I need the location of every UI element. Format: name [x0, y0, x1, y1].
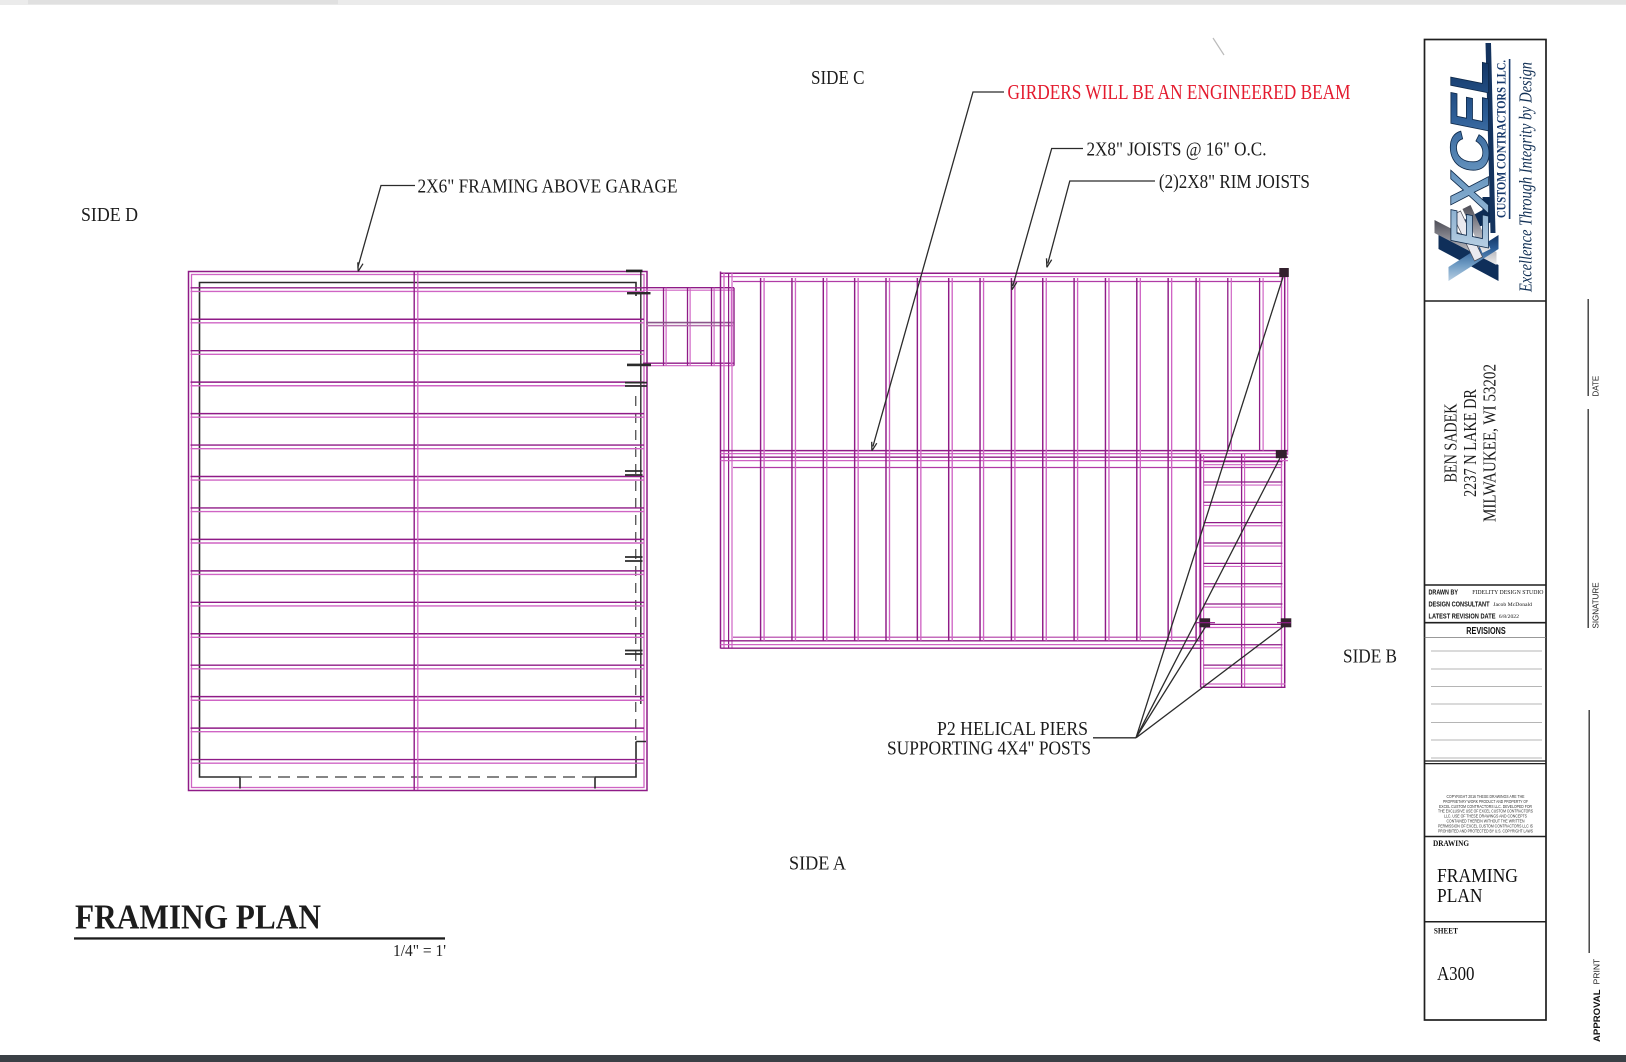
svg-text:BEN SADEK: BEN SADEK — [1441, 403, 1461, 482]
svg-text:A300: A300 — [1437, 963, 1475, 985]
svg-text:DRAWN BY: DRAWN BY — [1429, 588, 1459, 597]
svg-text:EXCEL: EXCEL — [1439, 59, 1501, 249]
svg-text:FRAMING: FRAMING — [1437, 866, 1518, 887]
svg-text:SIDE C: SIDE C — [811, 67, 865, 89]
svg-text:Excellence Through Integrity b: Excellence Through Integrity by Design — [1516, 62, 1536, 293]
svg-text:PLAN: PLAN — [1437, 886, 1483, 907]
svg-text:SIDE B: SIDE B — [1343, 646, 1397, 668]
svg-text:FIDELITY DESIGN STUDIO: FIDELITY DESIGN STUDIO — [1472, 590, 1543, 596]
svg-text:DESIGN CONSULTANT: DESIGN CONSULTANT — [1429, 600, 1490, 609]
svg-text:2X6" FRAMING ABOVE GARAGE: 2X6" FRAMING ABOVE GARAGE — [418, 176, 678, 198]
svg-text:APPROVAL: APPROVAL — [1592, 989, 1603, 1042]
svg-text:SIDE A: SIDE A — [789, 853, 846, 875]
svg-text:1/4" = 1': 1/4" = 1' — [393, 941, 446, 960]
svg-text:LATEST REVISION DATE: LATEST REVISION DATE — [1429, 612, 1496, 621]
svg-text:DATE: DATE — [1592, 376, 1601, 397]
svg-text:FRAMING PLAN: FRAMING PLAN — [75, 899, 321, 937]
svg-text:2X8" JOISTS @ 16" O.C.: 2X8" JOISTS @ 16" O.C. — [1087, 139, 1267, 161]
svg-text:SUPPORTING 4X4" POSTS: SUPPORTING 4X4" POSTS — [887, 738, 1091, 760]
svg-text:2237 N LAKE DR: 2237 N LAKE DR — [1460, 389, 1480, 497]
svg-text:(2)2X8" RIM JOISTS: (2)2X8" RIM JOISTS — [1159, 171, 1310, 193]
svg-text:GIRDERS WILL BE AN ENGINEERED: GIRDERS WILL BE AN ENGINEERED BEAM — [1008, 80, 1351, 104]
svg-text:SHEET: SHEET — [1434, 926, 1459, 935]
svg-text:CUSTOM CONTRACTORS LLC.: CUSTOM CONTRACTORS LLC. — [1494, 60, 1509, 218]
svg-text:SIGNATURE: SIGNATURE — [1592, 582, 1601, 628]
svg-text:PROHIBITED AND PROTECTED BY U.: PROHIBITED AND PROTECTED BY U.S. COPYRIG… — [1438, 828, 1534, 834]
svg-text:SIDE D: SIDE D — [81, 204, 138, 226]
svg-text:REVISIONS: REVISIONS — [1466, 626, 1506, 637]
svg-text:DRAWING: DRAWING — [1433, 839, 1469, 848]
svg-text:MILWAUKEE, WI 53202: MILWAUKEE, WI 53202 — [1480, 364, 1500, 522]
svg-text:Jacob McDonald: Jacob McDonald — [1493, 602, 1532, 608]
svg-text:PRINT: PRINT — [1592, 958, 1602, 985]
svg-text:6/8/2022: 6/8/2022 — [1499, 614, 1519, 620]
